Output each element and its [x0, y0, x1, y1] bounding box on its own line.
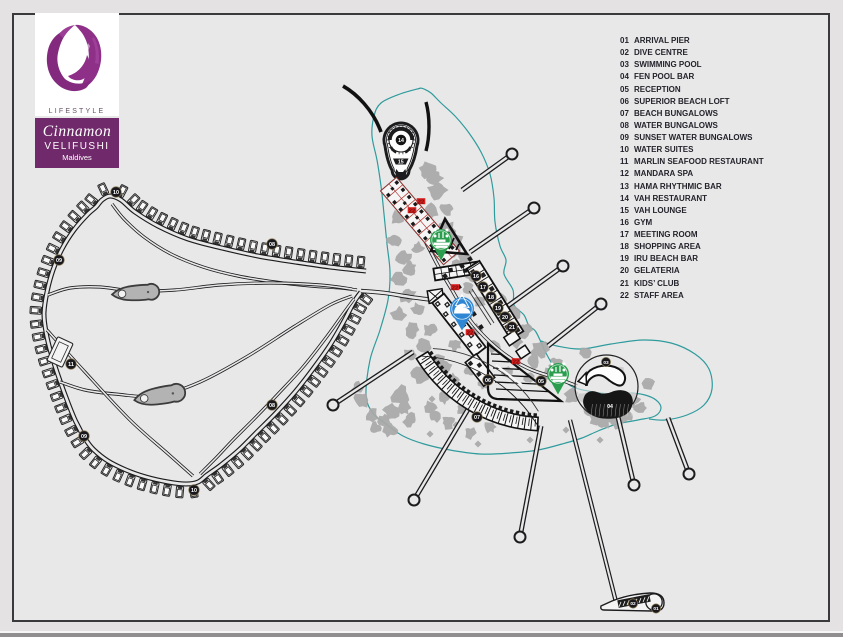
- svg-text:21: 21: [509, 325, 515, 331]
- svg-text:08: 08: [269, 242, 275, 248]
- svg-text:10: 10: [191, 488, 197, 494]
- svg-text:22: 22: [409, 208, 415, 214]
- svg-text:22: 22: [467, 330, 473, 336]
- svg-text:20: 20: [502, 315, 508, 321]
- svg-text:08: 08: [269, 403, 275, 409]
- svg-text:07: 07: [474, 415, 480, 421]
- svg-text:03: 03: [603, 360, 609, 366]
- svg-text:04: 04: [607, 404, 613, 410]
- svg-text:18: 18: [488, 295, 494, 301]
- svg-text:22: 22: [452, 285, 458, 291]
- svg-text:14: 14: [398, 138, 404, 144]
- svg-text:06: 06: [485, 378, 491, 384]
- svg-text:01: 01: [653, 606, 659, 612]
- svg-text:09: 09: [56, 258, 62, 264]
- svg-text:22: 22: [513, 359, 519, 365]
- svg-text:11: 11: [68, 362, 74, 368]
- svg-text:16: 16: [473, 274, 479, 280]
- svg-text:05: 05: [538, 379, 544, 385]
- svg-text:19: 19: [495, 306, 501, 312]
- svg-text:17: 17: [480, 285, 486, 291]
- svg-text:02: 02: [630, 601, 636, 607]
- svg-text:15: 15: [398, 159, 404, 165]
- svg-text:09: 09: [81, 434, 87, 440]
- svg-text:22: 22: [418, 199, 424, 205]
- svg-text:10: 10: [113, 190, 119, 196]
